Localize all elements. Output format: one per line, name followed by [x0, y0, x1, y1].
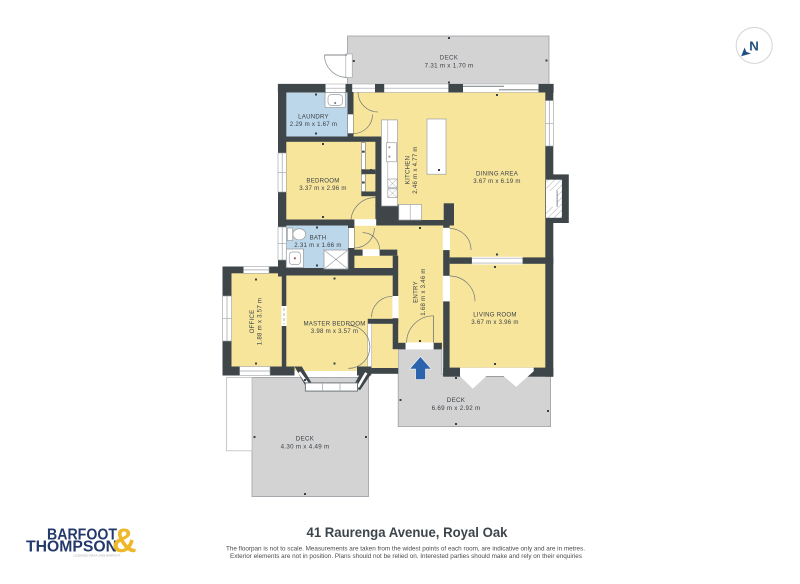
svg-text:41 Raurenga Avenue, Royal Oak: 41 Raurenga Avenue, Royal Oak: [307, 524, 508, 540]
svg-text:7.31 m x 1.70 m: 7.31 m x 1.70 m: [425, 63, 474, 70]
svg-text:LICENSED REAA 2008 BARFOOT: LICENSED REAA 2008 BARFOOT: [73, 553, 120, 557]
svg-text:ENTRY: ENTRY: [413, 281, 420, 303]
svg-text:KITCHEN: KITCHEN: [405, 156, 412, 185]
svg-text:DECK: DECK: [447, 397, 466, 404]
svg-text:DECK: DECK: [296, 436, 315, 443]
svg-text:3.37 m x 2.96 m: 3.37 m x 2.96 m: [299, 185, 346, 192]
svg-text:2.46 m x 4.77 m: 2.46 m x 4.77 m: [412, 146, 419, 193]
svg-text:DINING AREA: DINING AREA: [476, 171, 519, 178]
svg-text:The floorpan is not to scale.: The floorpan is not to scale. Measuremen…: [226, 547, 585, 553]
svg-text:3.98 m x 3.57 m: 3.98 m x 3.57 m: [311, 328, 358, 335]
svg-text:THOMPSON: THOMPSON: [26, 539, 117, 556]
svg-text:DECK: DECK: [440, 55, 459, 62]
svg-text:LIVING ROOM: LIVING ROOM: [473, 312, 516, 319]
svg-text:2.31 m x 1.66 m: 2.31 m x 1.66 m: [294, 242, 341, 249]
svg-text:OFFICE: OFFICE: [249, 310, 256, 334]
svg-text:4.30 m x 4.49 m: 4.30 m x 4.49 m: [281, 444, 330, 451]
svg-text:3.67 m x 3.96 m: 3.67 m x 3.96 m: [471, 319, 518, 326]
svg-text:LAUNDRY: LAUNDRY: [298, 113, 329, 120]
svg-text:3.67 m x 6.19 m: 3.67 m x 6.19 m: [473, 178, 520, 185]
svg-text:BEDROOM: BEDROOM: [306, 178, 339, 185]
svg-text:MASTER BEDROOM: MASTER BEDROOM: [303, 321, 365, 328]
svg-text:1.88 m x 3.57 m: 1.88 m x 3.57 m: [257, 298, 264, 345]
svg-text:N: N: [749, 39, 759, 54]
svg-text:6.69 m x 2.92 m: 6.69 m x 2.92 m: [432, 405, 481, 412]
svg-text:BATH: BATH: [310, 235, 327, 242]
svg-text:2.29 m x 1.67 m: 2.29 m x 1.67 m: [290, 121, 337, 128]
svg-text:1.68 m x 3.46 m: 1.68 m x 3.46 m: [420, 268, 427, 315]
svg-text:Exterior elements are not in p: Exterior elements are not in position. P…: [230, 554, 582, 560]
